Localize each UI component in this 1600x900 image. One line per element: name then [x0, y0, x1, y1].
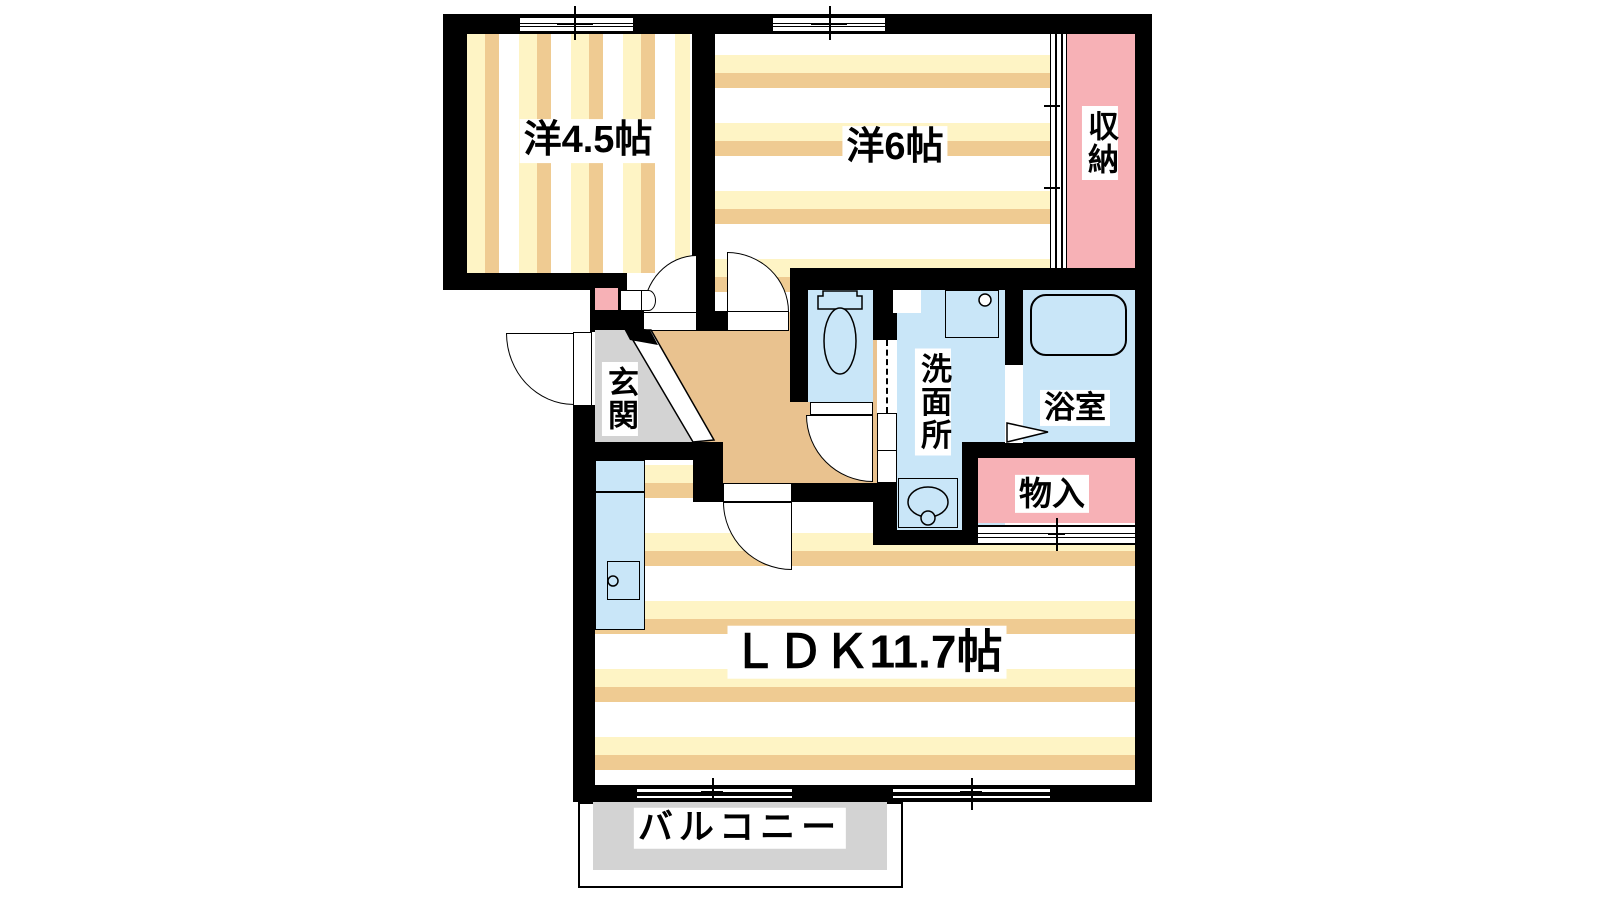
toilet-tank [818, 291, 862, 309]
toilet-bowl [824, 308, 856, 374]
wash-basin-drain [921, 511, 935, 525]
label-washroom: 洗面所 [915, 349, 951, 456]
fixtures-overlay [0, 0, 1600, 900]
label-entrance: 玄関 [602, 362, 638, 436]
label-ldk: ＬＤＫ11.7帖 [728, 626, 1007, 679]
label-western-6: 洋6帖 [842, 126, 947, 170]
label-western-4-5: 洋4.5帖 [520, 119, 657, 163]
label-closet: 収納 [1082, 106, 1118, 180]
floor-plan: 洋4.5帖 洋6帖 収納 玄関 洗面所 浴室 物入 ＬＤＫ11.7帖 バルコニー [0, 0, 1600, 900]
kitchen-sink-drain-icon [608, 576, 618, 586]
label-bathroom: 浴室 [1040, 390, 1110, 426]
washer-faucet-icon [979, 294, 991, 306]
label-balcony: バルコニー [634, 808, 846, 849]
label-storage: 物入 [1015, 475, 1089, 513]
